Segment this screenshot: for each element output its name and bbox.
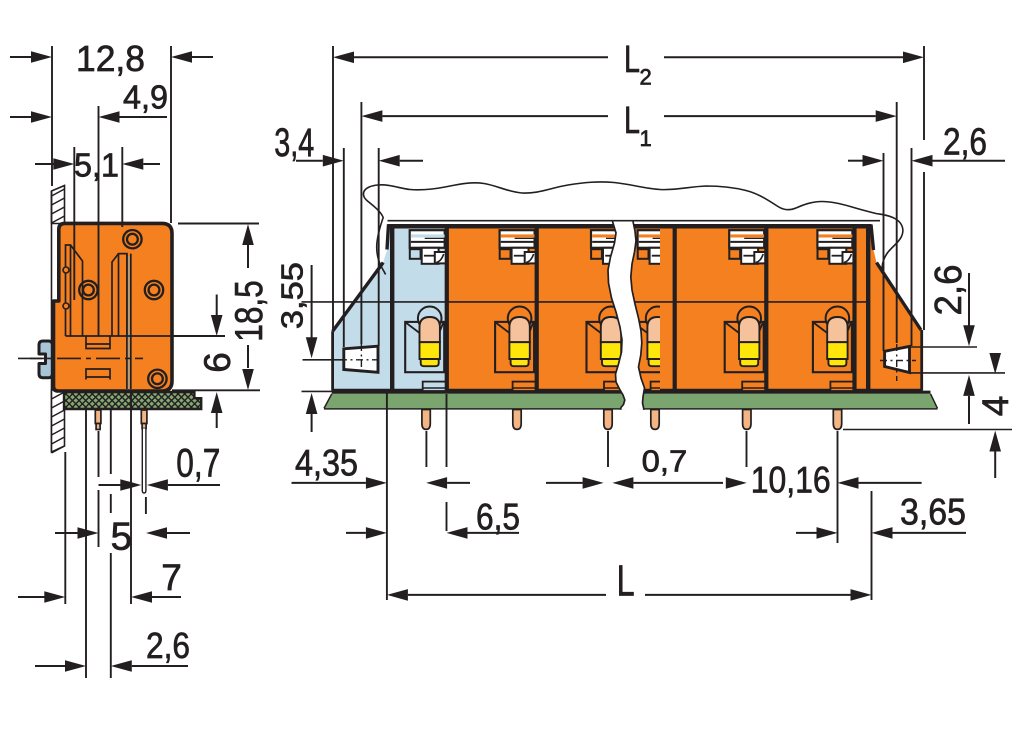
svg-text:4: 4 [975,396,1016,417]
svg-text:3,55: 3,55 [275,262,310,329]
svg-text:L: L [624,39,640,81]
svg-text:3,4: 3,4 [274,121,314,165]
svg-text:2,6: 2,6 [146,625,190,666]
svg-text:2: 2 [640,65,652,90]
svg-text:18,5: 18,5 [228,280,271,342]
svg-text:0,7: 0,7 [642,444,688,479]
svg-text:0,7: 0,7 [176,442,220,486]
svg-text:L: L [624,100,640,142]
svg-text:2,6: 2,6 [928,265,970,316]
svg-text:1: 1 [640,126,652,151]
svg-text:6: 6 [197,352,238,373]
svg-text:4,35: 4,35 [295,443,358,484]
svg-text:3,65: 3,65 [900,492,966,533]
svg-text:5: 5 [111,516,133,559]
svg-text:5,1: 5,1 [74,147,119,184]
svg-text:10,16: 10,16 [751,460,831,501]
svg-text:7: 7 [161,557,182,598]
svg-text:4,9: 4,9 [123,79,168,116]
svg-text:2,6: 2,6 [943,122,987,164]
svg-text:12,8: 12,8 [76,38,145,79]
svg-text:6,5: 6,5 [476,497,520,538]
svg-text:L: L [617,557,635,606]
